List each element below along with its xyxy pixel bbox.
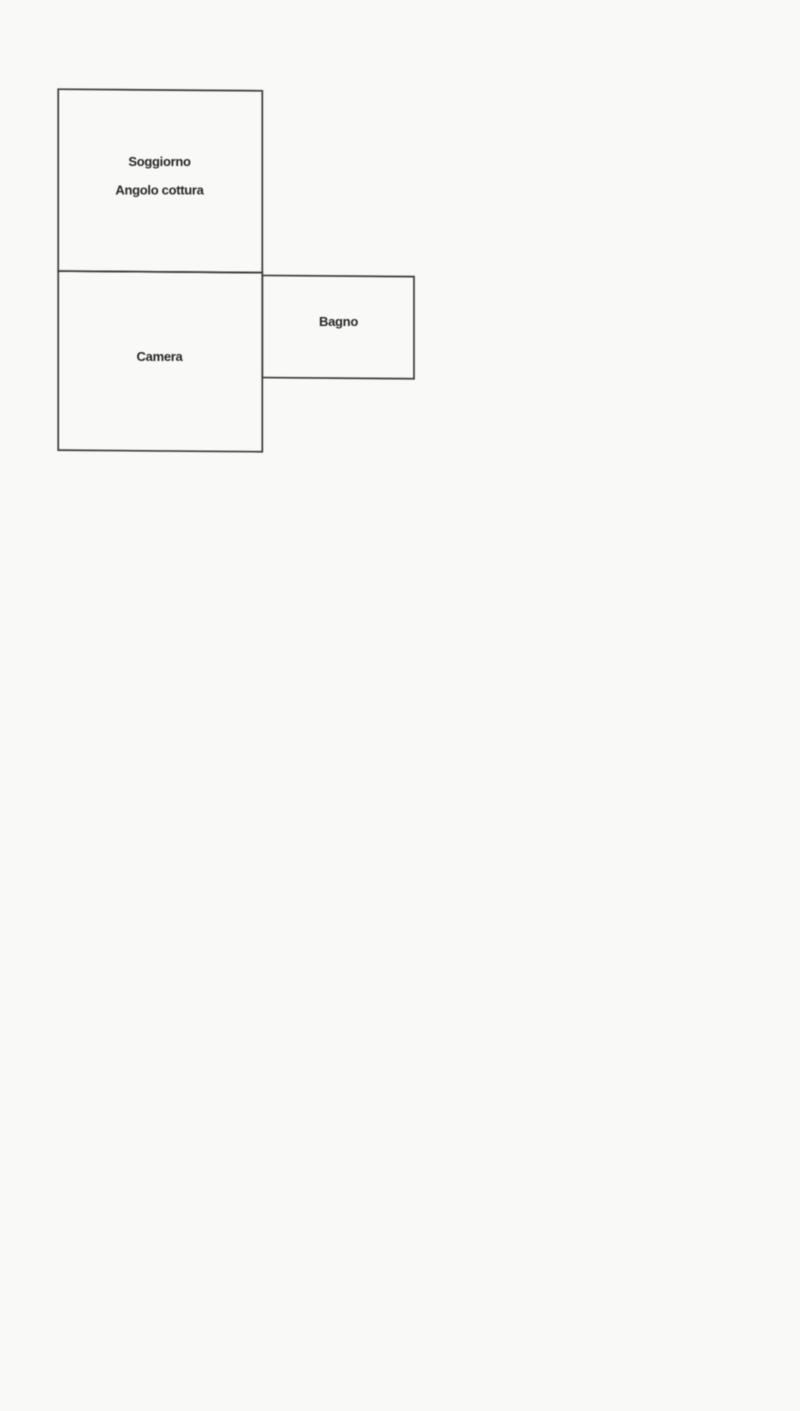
- svg-text:Bagno: Bagno: [319, 314, 358, 329]
- svg-text:Angolo cottura: Angolo cottura: [115, 183, 204, 198]
- svg-text:Soggiorno: Soggiorno: [128, 154, 191, 169]
- svg-text:Camera: Camera: [137, 349, 184, 364]
